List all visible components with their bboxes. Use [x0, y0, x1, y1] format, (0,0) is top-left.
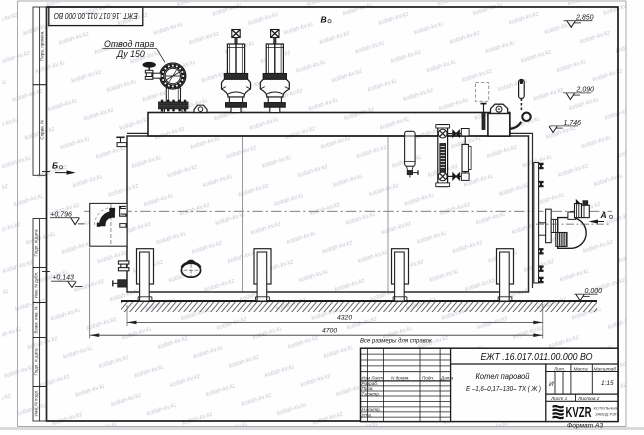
- svg-text:Подп. и дата: Подп. и дата: [34, 229, 39, 257]
- svg-text:Все размеры для справок: Все размеры для справок: [360, 339, 433, 345]
- svg-text:Масса: Масса: [574, 366, 589, 372]
- svg-text:Справ. N: Справ. N: [40, 120, 45, 139]
- svg-text:Масштаб: Масштаб: [594, 366, 617, 372]
- svg-text:4320: 4320: [337, 315, 352, 322]
- svg-text:Лист 1: Лист 1: [550, 396, 568, 402]
- svg-text:Подп. и дата: Подп. и дата: [34, 348, 39, 376]
- svg-text:Лит.: Лит.: [553, 366, 565, 372]
- svg-text:4700: 4700: [322, 327, 337, 334]
- svg-text:Инв. N дубл.: Инв. N дубл.: [34, 272, 39, 299]
- svg-text:Инв. N подл.: Инв. N подл.: [34, 389, 39, 416]
- svg-text:+0,143: +0,143: [52, 275, 74, 282]
- svg-text:В: В: [321, 15, 327, 25]
- svg-text:Изм Лист: Изм Лист: [362, 376, 384, 381]
- svg-text:КОТЕЛЬНЫЙ: КОТЕЛЬНЫЙ: [594, 406, 619, 411]
- svg-text:N докум.: N докум.: [391, 376, 410, 381]
- svg-text:Формат А3: Формат А3: [567, 423, 603, 430]
- svg-text:KVZR: KVZR: [566, 405, 592, 421]
- svg-text:2,850: 2,850: [575, 14, 594, 21]
- svg-text:И: И: [549, 381, 554, 388]
- svg-text:Б: Б: [52, 161, 58, 171]
- svg-text:Перв. примен.: Перв. примен.: [40, 31, 45, 62]
- svg-text:ЗАВОД РЭП: ЗАВОД РЭП: [595, 412, 618, 417]
- svg-text:Дата: Дата: [440, 376, 454, 381]
- svg-text:Подп.: Подп.: [422, 376, 434, 381]
- svg-text:1:15: 1:15: [601, 380, 614, 387]
- svg-text:Листов 2: Листов 2: [577, 396, 600, 402]
- svg-text:EЖТ .16.017.011.00.000 ВО: EЖТ .16.017.011.00.000 ВО: [481, 352, 593, 363]
- svg-text:Котел паровой: Котел паровой: [476, 372, 531, 381]
- svg-text:Т.контр.: Т.контр.: [362, 391, 381, 396]
- svg-text:Взам. инв. N: Взам. инв. N: [34, 307, 39, 334]
- svg-text:Отвод пара: Отвод пара: [104, 39, 154, 49]
- svg-text:Е –1,6–0,17–130– ТХ ( Ж ): Е –1,6–0,17–130– ТХ ( Ж ): [466, 384, 541, 393]
- svg-text:Утв.: Утв.: [362, 412, 372, 417]
- svg-text:А: А: [600, 210, 607, 220]
- svg-text:Ду 150: Ду 150: [116, 49, 145, 59]
- svg-text:EЖТ .16.017.011.00.000 ВО: EЖТ .16.017.011.00.000 ВО: [53, 11, 138, 20]
